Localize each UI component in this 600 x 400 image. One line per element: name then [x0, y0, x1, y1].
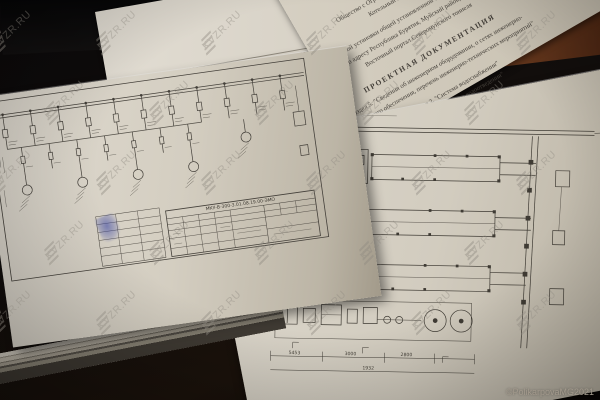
manifold-lines	[521, 136, 539, 348]
electrical-single-line-diagram	[0, 46, 381, 347]
motor-symbol	[14, 172, 35, 212]
motor-symbol	[125, 156, 146, 196]
dimension-value: 5453	[289, 350, 301, 356]
kvzr-bars-logo-icon	[0, 310, 6, 336]
title-block	[166, 190, 321, 256]
motor-symbol	[233, 119, 254, 159]
boiler-module-1	[338, 149, 537, 186]
bus-line	[0, 72, 304, 115]
dimension-labels: 5453 3000 2800 1932	[288, 350, 412, 372]
photo-scene: Российская ФедерацияОбщество с Ограничен…	[0, 0, 600, 400]
electrical-schematic-sheet: МКУ-В-300-3.01.08.19.00-ЭМО	[0, 46, 381, 347]
motor-symbol	[69, 164, 90, 204]
motor-symbol	[180, 148, 201, 188]
schematic-content-group	[0, 58, 329, 281]
copyright-text: ©PolikarpovaMG2021	[506, 387, 594, 397]
dimension-value: 1932	[362, 365, 374, 371]
dimension-value: 2800	[401, 352, 413, 358]
dimension-value: 3000	[345, 351, 357, 357]
